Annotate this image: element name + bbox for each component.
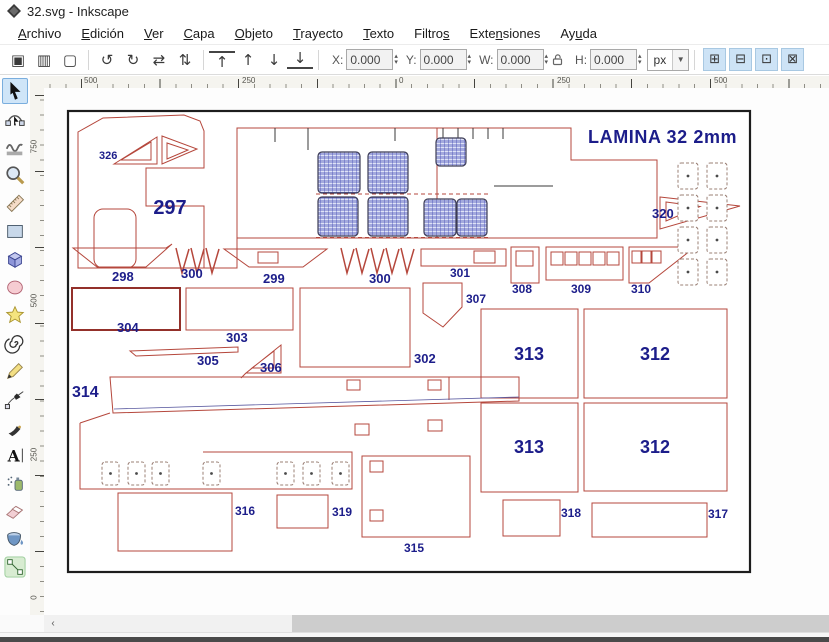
ruler-label: 500 — [84, 76, 97, 85]
w-spinner[interactable]: ▴▾ — [545, 54, 549, 66]
menu-filtros[interactable]: Filtros — [404, 24, 459, 43]
part-label: 312 — [640, 344, 670, 364]
h-field: ▴▾ — [590, 49, 642, 70]
part-label: 313 — [514, 344, 544, 364]
toolbar-separator — [318, 50, 319, 70]
zoom-icon — [4, 164, 26, 186]
h-input[interactable] — [590, 49, 637, 70]
menu-extensiones[interactable]: Extensiones — [460, 24, 551, 43]
rectangle-tool-button[interactable] — [2, 218, 28, 244]
ruler-label: 0 — [30, 587, 39, 609]
title-bar: 32.svg - Inkscape — [0, 0, 829, 22]
part-label: 298 — [112, 269, 134, 284]
ruler-corner — [30, 76, 44, 88]
y-field: ▴▾ — [420, 49, 472, 70]
eraser-tool-button[interactable] — [2, 498, 28, 524]
menu-bar: ArchivoEdiciónVerCapaObjetoTrayectoTexto… — [0, 22, 829, 44]
unit-value: px — [648, 53, 673, 67]
part-label: 315 — [404, 541, 424, 555]
pencil-icon — [4, 360, 26, 382]
horizontal-ruler: 5002500250500 — [44, 76, 829, 88]
spin-down-icon[interactable]: ▾ — [638, 60, 642, 66]
part-label: 297 — [153, 197, 186, 219]
spiral-tool-button[interactable] — [2, 330, 28, 356]
y-field-label: Y: — [406, 53, 417, 67]
part-label: 305 — [197, 353, 219, 368]
part-label: 300 — [181, 266, 203, 281]
bezier-pen-tool-button[interactable] — [2, 386, 28, 412]
box-3d-tool-button[interactable] — [2, 246, 28, 272]
y-input[interactable] — [420, 49, 467, 70]
move-clip-toggle-button[interactable]: ⊡ — [755, 48, 778, 71]
toolbar-separator — [203, 50, 204, 70]
toolbar-separator — [88, 50, 89, 70]
toolbar-toggles: ⊞⊟⊡⊠ — [700, 48, 804, 71]
star-icon — [4, 304, 26, 326]
canvas[interactable]: LAMINA 32 2mm326297320298300299300301308… — [44, 88, 829, 615]
scroll-corner — [0, 615, 44, 632]
window-bottom-edge — [0, 637, 829, 642]
text-icon: A — [4, 444, 26, 466]
spiral-icon — [4, 332, 26, 354]
scroll-left-arrow[interactable]: ‹ — [44, 615, 62, 632]
paint-bucket-tool-button[interactable] — [2, 526, 28, 552]
menu-objeto[interactable]: Objeto — [225, 24, 283, 43]
box-3d-icon — [4, 248, 26, 270]
calligraphy-icon — [4, 416, 26, 438]
part-label: 303 — [226, 330, 248, 345]
tweak-tool-button[interactable] — [2, 134, 28, 160]
measure-icon — [4, 192, 26, 214]
part-label: 309 — [571, 282, 591, 296]
node-editor-icon — [4, 108, 26, 130]
menu-archivo[interactable]: Archivo — [8, 24, 71, 43]
menu-capa[interactable]: Capa — [174, 24, 225, 43]
spray-icon — [4, 472, 26, 494]
menu-ayuda[interactable]: Ayuda — [550, 24, 607, 43]
h-field-label: H: — [575, 53, 587, 67]
rectangle-icon — [4, 220, 26, 242]
part-label: 302 — [414, 351, 436, 366]
toolbox: » A — [0, 76, 30, 637]
part-label: 299 — [263, 271, 285, 286]
lower-to-bottom-button[interactable]: ↓ — [287, 49, 313, 69]
scrollbar-thumb[interactable] — [292, 615, 829, 632]
move-gradient-toggle-button[interactable]: ⊟ — [729, 48, 752, 71]
ruler-label: 250 — [30, 444, 39, 466]
w-input[interactable] — [497, 49, 544, 70]
node-editor-tool-button[interactable] — [2, 106, 28, 132]
part-label: 301 — [450, 266, 470, 280]
toolbar-icon-groups: ▣▥▢↺↻⇄⇅↑↑↓↓ — [5, 48, 313, 72]
ellipse-tool-button[interactable] — [2, 274, 28, 300]
h-spinner[interactable]: ▴▾ — [638, 54, 642, 66]
x-input[interactable] — [346, 49, 393, 70]
w-field-label: W: — [479, 53, 493, 67]
ruler-label: 250 — [557, 76, 570, 85]
star-tool-button[interactable] — [2, 302, 28, 328]
lock-ratio-icon[interactable] — [552, 53, 563, 66]
text-tool-button[interactable]: A — [2, 442, 28, 468]
menu-texto[interactable]: Texto — [353, 24, 404, 43]
x-spinner[interactable]: ▴▾ — [394, 54, 398, 66]
x-field-label: X: — [332, 53, 343, 67]
toolbar-separator — [694, 50, 695, 70]
vertical-ruler: 7505002500 — [30, 88, 44, 615]
part-label: 318 — [561, 506, 581, 520]
select-all-layers-button[interactable]: ▥ — [31, 48, 57, 72]
inkscape-logo-icon — [7, 4, 21, 18]
part-label: 314 — [72, 384, 99, 401]
part-label: 326 — [99, 150, 117, 162]
raise-button[interactable]: ↑ — [235, 48, 261, 72]
rotate-ccw-button[interactable]: ↺ — [94, 48, 120, 72]
part-label: LAMINA 32 2mm — [588, 127, 737, 147]
flip-horizontal-button[interactable]: ⇄ — [146, 48, 172, 72]
spin-down-icon[interactable]: ▾ — [468, 60, 472, 66]
w-field: ▴▾ — [497, 49, 549, 70]
ruler-label: 750 — [30, 136, 39, 158]
horizontal-scrollbar[interactable]: ‹ — [44, 615, 829, 632]
part-label: 317 — [708, 507, 728, 521]
toolbar: ▣▥▢↺↻⇄⇅↑↑↓↓ X: ▴▾ Y: ▴▾ W: ▴▾ H: ▴▾ px ▼… — [0, 44, 829, 75]
paint-bucket-icon — [4, 528, 26, 550]
ellipse-icon — [4, 276, 26, 298]
spin-down-icon[interactable]: ▾ — [545, 60, 549, 66]
part-label: 312 — [640, 437, 670, 457]
svg-text:A: A — [7, 446, 21, 465]
zoom-tool-button[interactable] — [2, 162, 28, 188]
ruler-label: 500 — [30, 290, 39, 312]
menu-trayecto[interactable]: Trayecto — [283, 24, 353, 43]
scale-stroke-toggle-button[interactable]: ⊠ — [781, 48, 804, 71]
pencil-tool-button[interactable] — [2, 358, 28, 384]
raise-to-top-button[interactable]: ↑ — [209, 51, 235, 71]
move-pattern-toggle-button[interactable]: ⊞ — [703, 48, 726, 71]
part-label: 313 — [514, 437, 544, 457]
select-all-button[interactable]: ▣ — [5, 48, 31, 72]
part-label: 304 — [117, 320, 139, 335]
menu-edicin[interactable]: Edición — [71, 24, 134, 43]
lower-button[interactable]: ↓ — [261, 48, 287, 72]
selector-icon — [4, 80, 26, 102]
menu-ver[interactable]: Ver — [134, 24, 174, 43]
part-label: 300 — [369, 271, 391, 286]
unit-dropdown[interactable]: px ▼ — [647, 49, 690, 71]
chevron-down-icon: ▼ — [672, 50, 688, 70]
connector-icon — [4, 556, 26, 578]
ruler-label: 250 — [242, 76, 255, 85]
measure-tool-button[interactable] — [2, 190, 28, 216]
part-label: 306 — [260, 360, 282, 375]
part-label: 310 — [631, 282, 651, 296]
ruler-label: 0 — [399, 76, 403, 85]
connector-tool-button[interactable] — [2, 554, 28, 580]
tweak-icon — [4, 136, 26, 158]
x-field: ▴▾ — [346, 49, 398, 70]
eraser-icon — [4, 500, 26, 522]
deselect-button[interactable]: ▢ — [57, 48, 83, 72]
part-label: 307 — [466, 292, 486, 306]
part-label: 320 — [652, 206, 674, 221]
spin-down-icon[interactable]: ▾ — [394, 60, 398, 66]
rotate-cw-button[interactable]: ↻ — [120, 48, 146, 72]
selector-tool-button[interactable] — [2, 78, 28, 104]
window-title: 32.svg - Inkscape — [27, 4, 129, 19]
sheet-drawing[interactable]: LAMINA 32 2mm326297320298300299300301308… — [44, 88, 829, 615]
spray-tool-button[interactable] — [2, 470, 28, 496]
part-label: 319 — [332, 505, 352, 519]
bezier-pen-icon — [4, 388, 26, 410]
ruler-label: 500 — [714, 76, 727, 85]
part-label: 308 — [512, 282, 532, 296]
calligraphy-tool-button[interactable] — [2, 414, 28, 440]
part-label: 316 — [235, 504, 255, 518]
y-spinner[interactable]: ▴▾ — [468, 54, 472, 66]
flip-vertical-button[interactable]: ⇅ — [172, 48, 198, 72]
